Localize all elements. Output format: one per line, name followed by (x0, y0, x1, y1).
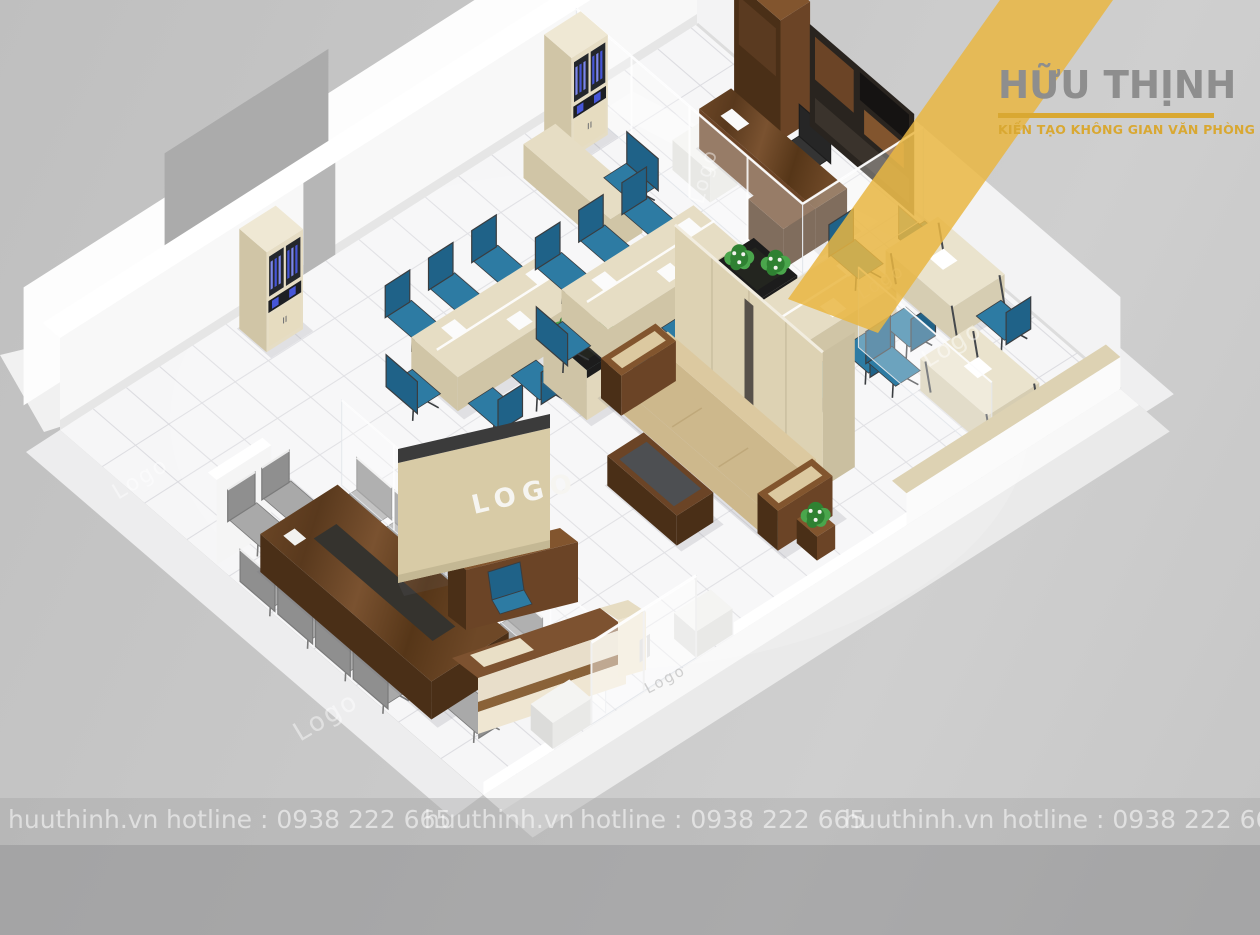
watermark-bar: huuthinh.vn hotline : 0938 222 665 huuth… (0, 798, 1260, 845)
watermark-hotline: hotline : 0938 222 665 (1002, 805, 1260, 834)
brand-logo: HỮU THỊNH KIẾN TẠO KHÔNG GIAN VĂN PHÒNG (998, 66, 1228, 137)
watermark-site: huuthinh.vn (844, 805, 994, 834)
brand-tagline: KIẾN TẠO KHÔNG GIAN VĂN PHÒNG (998, 122, 1228, 137)
watermark-hotline: hotline : 0938 222 665 (580, 805, 865, 834)
watermark-hotline: hotline : 0938 222 665 (166, 805, 451, 834)
floorplan-scene: LOGOLogoLogoLogoLogoLogoLogo (0, 0, 1260, 935)
brand-underline (998, 113, 1214, 118)
watermark-site: huuthinh.vn (424, 805, 574, 834)
bottom-shade-strip (0, 845, 1260, 935)
office-3d-render: LOGOLogoLogoLogoLogoLogoLogo huuthinh.vn… (0, 0, 1260, 935)
watermark-site: huuthinh.vn (8, 805, 158, 834)
brand-name: HỮU THỊNH (998, 66, 1223, 104)
